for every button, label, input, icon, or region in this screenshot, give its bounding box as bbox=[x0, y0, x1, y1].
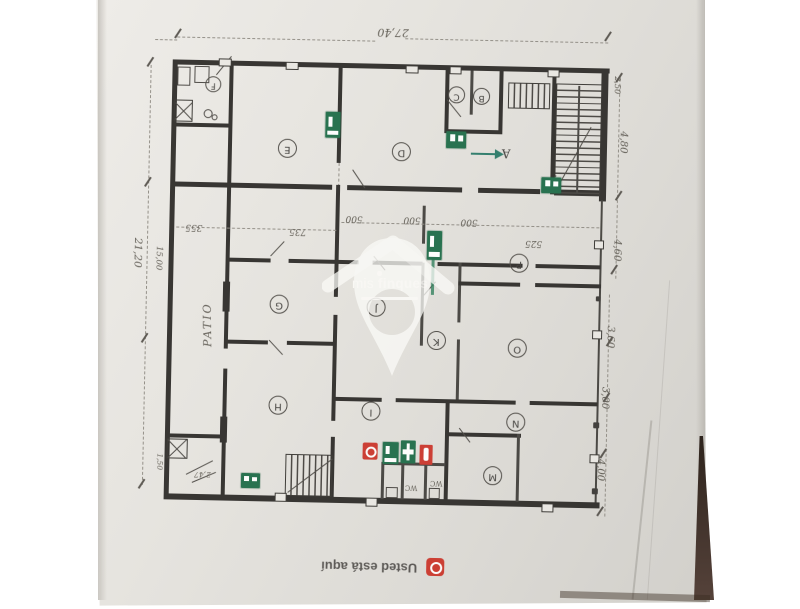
route-label: A bbox=[502, 146, 511, 160]
dimension-tick bbox=[138, 479, 145, 489]
dimension-label: 500 bbox=[345, 213, 362, 223]
exit-sign bbox=[446, 131, 466, 148]
photo-of-evacuation-floor-plan: E D C B F G J K P O H I N M A 27,40 bbox=[0, 0, 800, 600]
toilet-fixture bbox=[429, 488, 440, 499]
window bbox=[406, 65, 419, 73]
column bbox=[275, 493, 287, 502]
room-label: H bbox=[268, 395, 287, 414]
toilet-fixture bbox=[386, 487, 398, 498]
wall bbox=[498, 71, 503, 133]
watermark-brand-text: mis finques bbox=[352, 276, 452, 291]
window bbox=[286, 62, 299, 70]
wc-label: WC bbox=[405, 483, 418, 491]
door-swing bbox=[270, 241, 285, 256]
dimension-tick bbox=[604, 31, 611, 41]
column bbox=[365, 498, 377, 507]
toilet-fixture bbox=[212, 114, 218, 120]
room-label: C bbox=[448, 86, 465, 103]
patio-label: PATIO bbox=[201, 302, 215, 347]
dimension-label-left-inner: 15,00 bbox=[154, 246, 165, 271]
dimension-label-right: 3,00 bbox=[599, 387, 610, 409]
room-label: F bbox=[205, 76, 221, 92]
column-dot bbox=[596, 296, 601, 301]
column bbox=[541, 503, 553, 512]
dimension-line bbox=[405, 38, 608, 43]
dimension-label-right: 2,50 bbox=[613, 76, 622, 94]
route-arrow bbox=[471, 153, 497, 156]
wc-label: WC bbox=[430, 479, 443, 487]
room-label: O bbox=[508, 338, 527, 357]
door-swing bbox=[268, 340, 283, 356]
exit-sign bbox=[541, 177, 561, 193]
wall bbox=[173, 59, 610, 73]
room-label: M bbox=[483, 466, 502, 485]
you-are-here-marker bbox=[362, 442, 377, 459]
dimension-label-right: 4,00 bbox=[595, 459, 606, 481]
column-dot bbox=[592, 488, 598, 494]
dimension-label-right: 4,60 bbox=[611, 239, 622, 261]
dimension-line bbox=[142, 65, 152, 485]
hatched-box bbox=[166, 438, 187, 458]
exit-sign bbox=[382, 442, 398, 464]
window bbox=[450, 66, 462, 74]
room-label: I bbox=[361, 401, 380, 420]
wall bbox=[458, 281, 520, 286]
watermark-chimney-dot-icon bbox=[377, 271, 382, 276]
wall bbox=[226, 258, 271, 263]
wall bbox=[535, 283, 601, 288]
shower-box bbox=[173, 99, 192, 121]
room-label: E bbox=[278, 139, 297, 158]
column-dot bbox=[593, 422, 599, 428]
window bbox=[219, 58, 232, 66]
you-are-here-legend-text: Usted está aquí bbox=[314, 558, 424, 575]
room-label: B bbox=[473, 88, 490, 105]
column bbox=[592, 330, 602, 339]
wall bbox=[530, 401, 598, 406]
dimension-label-right: 4,80 bbox=[618, 131, 629, 153]
dimension-label-left: 21,20 bbox=[131, 238, 144, 268]
you-are-here-legend-icon bbox=[426, 558, 444, 576]
dimension-label-right: 3,60 bbox=[604, 326, 615, 348]
dimension-label: 735 bbox=[289, 226, 306, 236]
exit-sign bbox=[325, 112, 341, 138]
wall-pier bbox=[220, 416, 228, 442]
furniture bbox=[177, 67, 190, 86]
wall bbox=[445, 432, 521, 438]
watermark-logo-pin-icon bbox=[322, 224, 462, 404]
room-label: D bbox=[392, 142, 411, 161]
exit-sign bbox=[241, 473, 260, 488]
wall bbox=[478, 188, 540, 194]
mis-finques-watermark: mis finques bbox=[322, 224, 462, 404]
wall bbox=[170, 181, 332, 189]
column bbox=[594, 240, 604, 249]
watermark-word-2: finques bbox=[378, 276, 428, 291]
dimension-label: 2,47 bbox=[194, 470, 211, 479]
window bbox=[547, 69, 559, 77]
dimension-label: 525 bbox=[525, 238, 542, 248]
dimension-line bbox=[177, 36, 375, 41]
wall bbox=[535, 264, 600, 269]
wall bbox=[424, 463, 428, 500]
dimension-label-top: 27,40 bbox=[377, 26, 409, 40]
room-label: P bbox=[509, 254, 528, 273]
dimension-label: 500 bbox=[460, 216, 477, 226]
wall bbox=[516, 434, 520, 502]
fire-extinguisher-sign bbox=[419, 445, 432, 465]
watermark-underline bbox=[361, 297, 418, 300]
wall bbox=[224, 340, 268, 345]
room-label: G bbox=[269, 294, 288, 313]
wall bbox=[381, 462, 385, 499]
staircase-small bbox=[508, 82, 551, 109]
dimension-tick bbox=[610, 264, 617, 274]
dimension-tick bbox=[615, 191, 622, 201]
dimension-label: 355 bbox=[185, 222, 202, 232]
wall-pier bbox=[223, 282, 231, 312]
room-label: N bbox=[506, 412, 525, 431]
watermark-word-1: mis bbox=[352, 276, 374, 291]
wall bbox=[401, 462, 405, 499]
wall bbox=[444, 399, 450, 501]
door-opening-dashed bbox=[338, 163, 340, 187]
wall bbox=[171, 122, 231, 127]
first-aid-sign bbox=[400, 440, 415, 463]
dimension-line bbox=[155, 39, 177, 40]
dimension-label: 1,50 bbox=[155, 453, 164, 470]
